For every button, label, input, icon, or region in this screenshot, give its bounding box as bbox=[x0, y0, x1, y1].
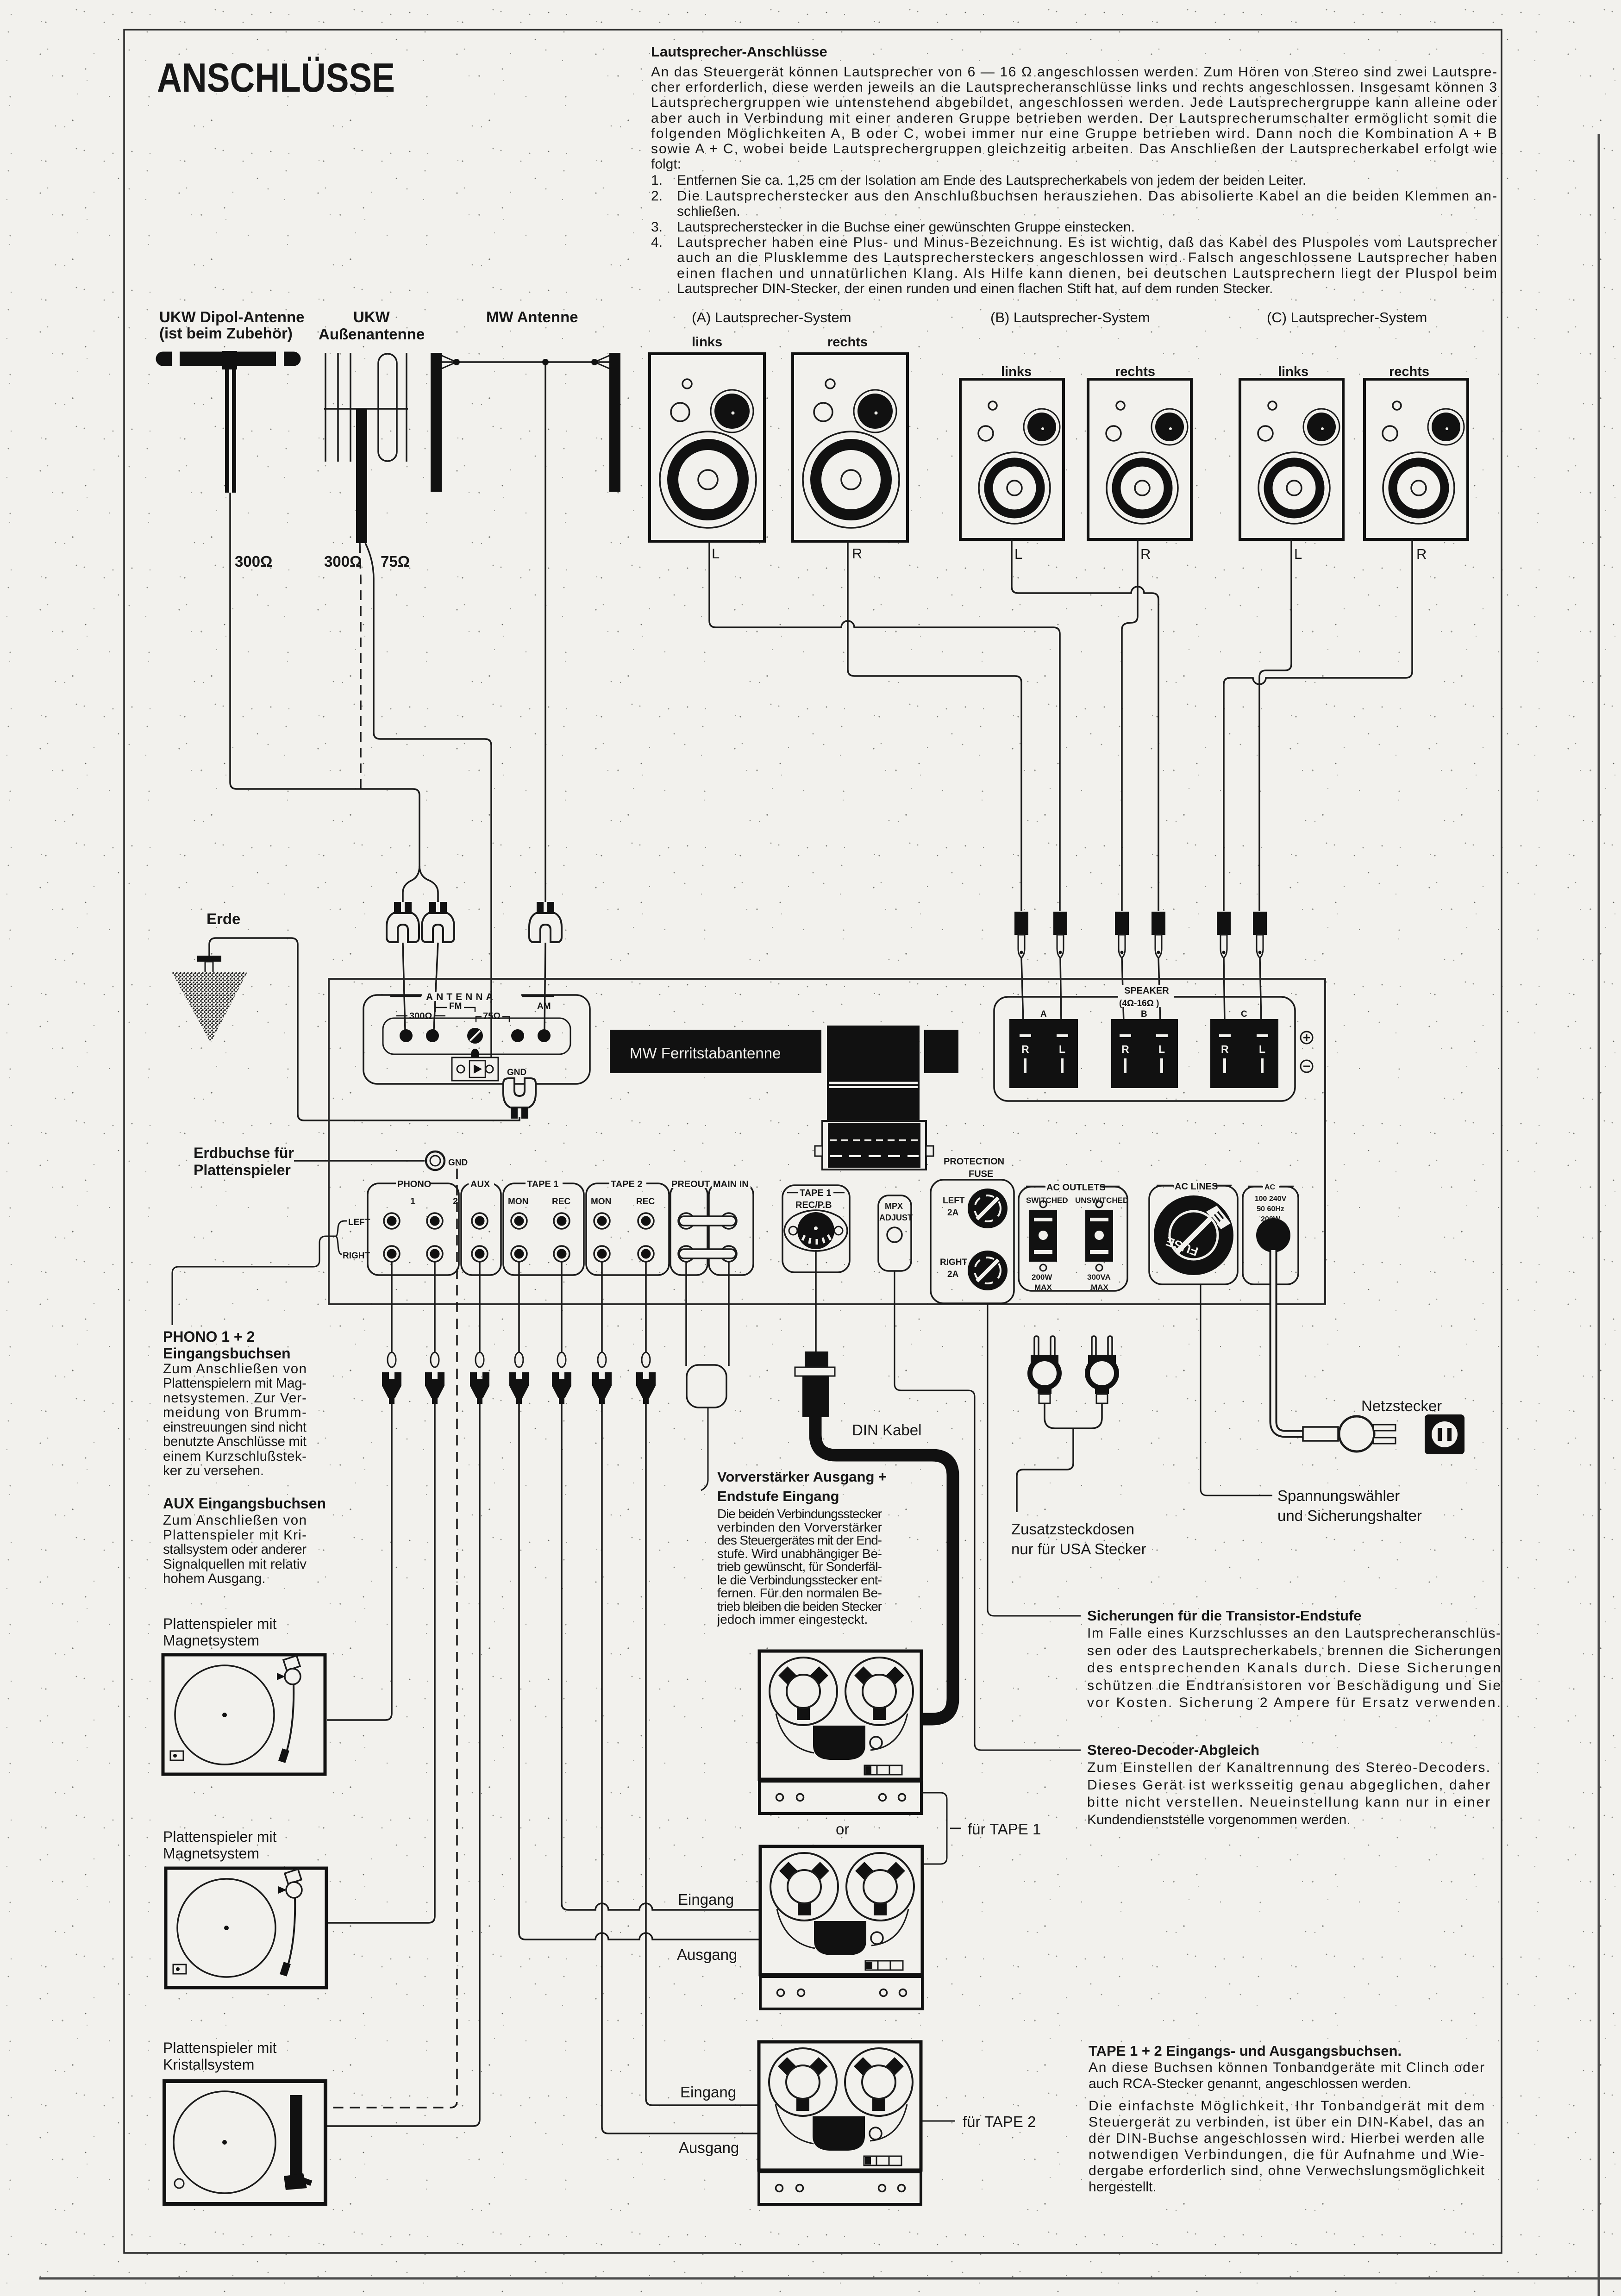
svg-text:AUX: AUX bbox=[470, 1179, 490, 1189]
svg-text:cher erforderlich, diese werde: cher erforderlich, diese werden jeweils … bbox=[651, 80, 1497, 95]
svg-text:75Ω: 75Ω bbox=[483, 1011, 501, 1021]
svg-text:An diese Buchsen können Tonban: An diese Buchsen können Tonbandgeräte mi… bbox=[1089, 2060, 1484, 2075]
svg-text:300Ω: 300Ω bbox=[235, 553, 273, 570]
svg-text:TAPE 1: TAPE 1 bbox=[527, 1179, 559, 1189]
svg-text:R: R bbox=[1416, 546, 1427, 562]
svg-text:MAX: MAX bbox=[1091, 1283, 1108, 1292]
svg-text:GND: GND bbox=[507, 1068, 526, 1077]
svg-text:schließen.: schließen. bbox=[677, 204, 740, 219]
svg-text:Außenantenne: Außenantenne bbox=[319, 325, 425, 343]
svg-text:Signalquellen mit relativ: Signalquellen mit relativ bbox=[163, 1557, 307, 1572]
svg-text:R: R bbox=[1021, 1043, 1029, 1055]
svg-text:stallsystem oder anderer: stallsystem oder anderer bbox=[163, 1542, 307, 1557]
svg-text:le die Verbindungsstecker ent-: le die Verbindungsstecker ent- bbox=[717, 1573, 882, 1587]
svg-text:Magnetsystem: Magnetsystem bbox=[163, 1632, 259, 1649]
svg-text:Kundendienststelle vorgenommen: Kundendienststelle vorgenommen werden. bbox=[1087, 1812, 1351, 1827]
svg-text:bitte nicht verstellen. Neuein: bitte nicht verstellen. Neueinstellung k… bbox=[1087, 1795, 1490, 1810]
svg-text:R: R bbox=[1140, 546, 1151, 562]
svg-text:Magnetsystem: Magnetsystem bbox=[163, 1845, 259, 1862]
svg-text:SWITCHED: SWITCHED bbox=[1026, 1196, 1068, 1205]
svg-text:2A: 2A bbox=[947, 1270, 959, 1279]
svg-text:L: L bbox=[1294, 546, 1302, 562]
svg-text:ADJUST: ADJUST bbox=[879, 1213, 913, 1222]
svg-text:1: 1 bbox=[410, 1196, 415, 1207]
svg-text:stufe. Wird unabhängiger Be-: stufe. Wird unabhängiger Be- bbox=[717, 1546, 882, 1561]
svg-text:REC: REC bbox=[552, 1197, 570, 1207]
svg-text:MON: MON bbox=[591, 1197, 611, 1207]
svg-text:A: A bbox=[1040, 1009, 1047, 1019]
svg-text:rechts: rechts bbox=[827, 335, 868, 350]
svg-text:Lautsprecher haben eine Plus-: Lautsprecher haben eine Plus- und Minus-… bbox=[677, 235, 1497, 250]
svg-text:1.: 1. bbox=[651, 173, 663, 188]
svg-text:AC LINES: AC LINES bbox=[1175, 1182, 1218, 1192]
svg-text:MPX: MPX bbox=[885, 1201, 903, 1211]
svg-text:Entfernen Sie ca. 1,25 cm der: Entfernen Sie ca. 1,25 cm der Isolation … bbox=[677, 173, 1306, 188]
svg-text:für TAPE 1: für TAPE 1 bbox=[968, 1821, 1041, 1838]
svg-text:Plattenspieler: Plattenspieler bbox=[194, 1162, 291, 1178]
svg-text:R: R bbox=[852, 545, 862, 562]
svg-text:Lautsprecherstecker in die Buc: Lautsprecherstecker in die Buchse einer … bbox=[677, 219, 1135, 235]
svg-text:2A: 2A bbox=[947, 1208, 959, 1218]
svg-text:PREOUT: PREOUT bbox=[671, 1179, 710, 1189]
svg-text:TAPE 2: TAPE 2 bbox=[611, 1179, 643, 1189]
svg-text:Plattenspieler mit: Plattenspieler mit bbox=[163, 2039, 277, 2056]
svg-text:einem Kurzschlußstek-: einem Kurzschlußstek- bbox=[163, 1449, 307, 1464]
svg-text:schützen die Endtransistoren v: schützen die Endtransistoren vor Beschäd… bbox=[1087, 1678, 1501, 1693]
svg-text:einen flachen und unnatürliche: einen flachen und unnatürlichen Klang. A… bbox=[677, 266, 1497, 281]
svg-text:GND: GND bbox=[448, 1158, 468, 1168]
svg-text:200W: 200W bbox=[1032, 1273, 1052, 1282]
svg-text:links: links bbox=[692, 335, 722, 350]
svg-text:MW Ferritstabantenne: MW Ferritstabantenne bbox=[630, 1045, 781, 1062]
svg-text:rechts: rechts bbox=[1115, 364, 1155, 379]
svg-text:einstreuungen sind nicht: einstreuungen sind nicht bbox=[163, 1420, 307, 1435]
svg-text:und Sicherungshalter: und Sicherungshalter bbox=[1277, 1507, 1422, 1524]
svg-text:UKW Dipol-Antenne: UKW Dipol-Antenne bbox=[159, 308, 304, 325]
svg-text:Dieses Gerät ist werksseitig g: Dieses Gerät ist werksseitig genau abgeg… bbox=[1087, 1777, 1490, 1793]
svg-text:verbinden den Vorverstärker: verbinden den Vorverstärker bbox=[717, 1520, 882, 1534]
svg-text:AM: AM bbox=[537, 1001, 551, 1011]
svg-text:trieb bleiben die beiden Steck: trieb bleiben die beiden Stecker bbox=[717, 1599, 882, 1614]
svg-text:Die Lautsprecherstecker aus de: Die Lautsprecherstecker aus den Anschluß… bbox=[677, 188, 1497, 204]
svg-text:Eingangsbuchsen: Eingangsbuchsen bbox=[163, 1345, 291, 1362]
svg-text:TAPE 1: TAPE 1 bbox=[800, 1188, 832, 1198]
svg-text:AC: AC bbox=[1264, 1183, 1276, 1191]
svg-text:auch RCA-Stecker genannt, ange: auch RCA-Stecker genannt, angeschlossen … bbox=[1089, 2076, 1411, 2091]
svg-text:MW Antenne: MW Antenne bbox=[486, 308, 578, 325]
svg-text:MAX: MAX bbox=[1034, 1283, 1052, 1292]
svg-text:Sicherungen für die Transistor: Sicherungen für die Transistor-Endstufe bbox=[1087, 1608, 1362, 1624]
svg-text:L: L bbox=[1259, 1043, 1265, 1055]
svg-text:3.: 3. bbox=[651, 219, 663, 235]
svg-text:R: R bbox=[1221, 1043, 1229, 1055]
svg-text:Plattenspieler mit Kri-: Plattenspieler mit Kri- bbox=[163, 1527, 307, 1543]
svg-text:B: B bbox=[1141, 1009, 1147, 1019]
svg-text:300Ω: 300Ω bbox=[324, 553, 362, 570]
svg-text:AUX Eingangsbuchsen: AUX Eingangsbuchsen bbox=[163, 1495, 326, 1512]
svg-text:2.: 2. bbox=[651, 188, 663, 204]
svg-text:REC/P.B: REC/P.B bbox=[795, 1200, 832, 1210]
svg-text:links: links bbox=[1001, 364, 1032, 379]
svg-text:UKW: UKW bbox=[353, 308, 390, 325]
svg-text:Spannungswähler: Spannungswähler bbox=[1277, 1487, 1400, 1504]
svg-text:FM: FM bbox=[449, 1001, 462, 1011]
svg-text:hergestellt.: hergestellt. bbox=[1089, 2179, 1157, 2195]
svg-text:folgt:: folgt: bbox=[651, 156, 681, 172]
svg-text:folgenden Möglichkeiten A, B o: folgenden Möglichkeiten A, B oder C, wob… bbox=[651, 126, 1497, 141]
svg-text:LEFT: LEFT bbox=[348, 1218, 370, 1227]
svg-text:DIN Kabel: DIN Kabel bbox=[852, 1421, 921, 1439]
svg-text:Netzstecker: Netzstecker bbox=[1361, 1397, 1442, 1414]
svg-text:Lautsprecher-Anschlüsse: Lautsprecher-Anschlüsse bbox=[651, 44, 827, 60]
svg-text:RIGHT: RIGHT bbox=[940, 1257, 968, 1267]
svg-text:Steuergerät zu verbinden, ist: Steuergerät zu verbinden, ist über ein D… bbox=[1089, 2115, 1484, 2130]
svg-text:(ist beim Zubehör): (ist beim Zubehör) bbox=[159, 325, 293, 342]
svg-text:trieb gewünscht, für Sonderfäl: trieb gewünscht, für Sonderfäl- bbox=[717, 1559, 882, 1574]
svg-text:300VA: 300VA bbox=[1087, 1273, 1111, 1282]
svg-text:Eingang: Eingang bbox=[678, 1891, 734, 1908]
svg-text:PHONO 1 + 2: PHONO 1 + 2 bbox=[163, 1328, 255, 1345]
svg-text:Erdbuchse für: Erdbuchse für bbox=[194, 1145, 294, 1161]
svg-text:Ausgang: Ausgang bbox=[679, 2139, 739, 2156]
svg-text:Erde: Erde bbox=[207, 910, 240, 927]
svg-text:MON: MON bbox=[508, 1197, 528, 1207]
svg-text:MAIN IN: MAIN IN bbox=[713, 1179, 749, 1189]
svg-text:benutzte Anschlüsse mit: benutzte Anschlüsse mit bbox=[163, 1434, 307, 1449]
svg-text:Plattenspielern mit Mag-: Plattenspielern mit Mag- bbox=[163, 1376, 307, 1391]
svg-text:Plattenspieler mit: Plattenspieler mit bbox=[163, 1828, 277, 1845]
svg-text:(C) Lautsprecher-System: (C) Lautsprecher-System bbox=[1267, 309, 1427, 325]
svg-text:(B) Lautsprecher-System: (B) Lautsprecher-System bbox=[990, 309, 1150, 325]
svg-text:ker zu versehen.: ker zu versehen. bbox=[163, 1463, 264, 1478]
svg-text:sowie A + C, wobei beide Lauts: sowie A + C, wobei beide Lautsprechergru… bbox=[651, 141, 1497, 156]
svg-text:Plattenspieler mit: Plattenspieler mit bbox=[163, 1615, 277, 1632]
svg-text:L: L bbox=[1059, 1043, 1065, 1055]
svg-text:des Steuergerätes mit der End-: des Steuergerätes mit der End- bbox=[717, 1533, 882, 1547]
svg-text:or: or bbox=[836, 1821, 849, 1838]
svg-text:C: C bbox=[1241, 1009, 1247, 1019]
svg-text:Zum Anschließen von: Zum Anschließen von bbox=[163, 1513, 307, 1528]
svg-text:L: L bbox=[1158, 1043, 1165, 1055]
svg-text:Zum Anschließen von: Zum Anschließen von bbox=[163, 1361, 307, 1376]
svg-text:netsystemen. Zur Ver-: netsystemen. Zur Ver- bbox=[163, 1390, 307, 1406]
svg-text:Im Falle eines Kurzschlusses a: Im Falle eines Kurzschlusses an den Laut… bbox=[1087, 1626, 1501, 1641]
svg-text:PHONO: PHONO bbox=[397, 1179, 431, 1189]
svg-text:Zusatzsteckdosen: Zusatzsteckdosen bbox=[1011, 1520, 1134, 1538]
svg-text:ANTENNA: ANTENNA bbox=[426, 992, 496, 1002]
svg-text:links: links bbox=[1278, 364, 1308, 379]
svg-text:Die einfachste Möglichkeit, Ih: Die einfachste Möglichkeit, Ihr Tonbandg… bbox=[1089, 2098, 1484, 2114]
svg-text:R: R bbox=[1121, 1043, 1129, 1055]
svg-text:REC: REC bbox=[636, 1197, 655, 1207]
svg-text:meidung von Brumm-: meidung von Brumm- bbox=[163, 1405, 307, 1420]
svg-text:LEFT: LEFT bbox=[943, 1196, 965, 1206]
svg-text:SPEAKER: SPEAKER bbox=[1124, 986, 1169, 996]
svg-text:4.: 4. bbox=[651, 235, 663, 250]
svg-text:AC OUTLETS: AC OUTLETS bbox=[1046, 1182, 1106, 1193]
svg-text:nur für USA Stecker: nur für USA Stecker bbox=[1011, 1540, 1146, 1558]
svg-text:jedoch immer eingesteckt.: jedoch immer eingesteckt. bbox=[717, 1612, 868, 1627]
svg-text:Endstufe Eingang: Endstufe Eingang bbox=[717, 1488, 839, 1504]
svg-text:An das Steuergerät können Laut: An das Steuergerät können Lautsprecher v… bbox=[651, 64, 1497, 80]
svg-text:100 240V: 100 240V bbox=[1255, 1195, 1287, 1203]
svg-text:Ausgang: Ausgang bbox=[677, 1946, 737, 1963]
svg-text:Eingang: Eingang bbox=[680, 2083, 736, 2101]
svg-text:75Ω: 75Ω bbox=[381, 553, 410, 570]
svg-text:fernen. Für den normalen Be-: fernen. Für den normalen Be- bbox=[717, 1586, 882, 1600]
svg-text:Zum Einstellen der Kanaltrennu: Zum Einstellen der Kanaltrennung des Ste… bbox=[1087, 1760, 1490, 1775]
svg-text:aber auch in Verbindung mit ei: aber auch in Verbindung mit einer andere… bbox=[651, 111, 1497, 126]
svg-text:Kristallsystem: Kristallsystem bbox=[163, 2056, 254, 2073]
svg-text:hohem Ausgang.: hohem Ausgang. bbox=[163, 1571, 265, 1586]
svg-text:Die beiden Verbindungsstecker: Die beiden Verbindungsstecker bbox=[717, 1507, 882, 1521]
svg-text:PROTECTION: PROTECTION bbox=[944, 1157, 1004, 1167]
svg-text:(4Ω-16Ω ): (4Ω-16Ω ) bbox=[1119, 999, 1159, 1008]
svg-text:rechts: rechts bbox=[1389, 364, 1429, 379]
svg-text:TAPE 1 + 2 Eingangs- und Ausga: TAPE 1 + 2 Eingangs- und Ausgangsbuchsen… bbox=[1089, 2043, 1402, 2059]
svg-text:der DIN-Buchse angeschlossen w: der DIN-Buchse angeschlossen wird. Hierb… bbox=[1089, 2131, 1484, 2146]
svg-text:Vorverstärker Ausgang +: Vorverstärker Ausgang + bbox=[717, 1469, 887, 1485]
svg-text:50 60Hz: 50 60Hz bbox=[1257, 1205, 1284, 1213]
svg-text:Lautsprecher DIN-Stecker, der: Lautsprecher DIN-Stecker, der einen rund… bbox=[677, 281, 1273, 296]
svg-text:L: L bbox=[712, 545, 720, 562]
svg-text:für TAPE 2: für TAPE 2 bbox=[963, 2113, 1036, 2130]
svg-text:L: L bbox=[1014, 546, 1022, 562]
svg-text:dergabe erforderlich sind, ohn: dergabe erforderlich sind, ohne Verwechs… bbox=[1089, 2163, 1485, 2178]
svg-text:300Ω: 300Ω bbox=[409, 1011, 432, 1021]
svg-text:sen oder des Lautsprecherkabel: sen oder des Lautsprecherkabels, brennen… bbox=[1087, 1643, 1501, 1658]
svg-text:2: 2 bbox=[453, 1196, 458, 1207]
svg-text:(A) Lautsprecher-System: (A) Lautsprecher-System bbox=[692, 309, 851, 325]
svg-text:ANSCHLÜSSE: ANSCHLÜSSE bbox=[157, 55, 395, 100]
svg-text:FUSE: FUSE bbox=[969, 1169, 993, 1179]
svg-text:RIGHT: RIGHT bbox=[343, 1251, 370, 1261]
svg-text:Stereo-Decoder-Abgleich: Stereo-Decoder-Abgleich bbox=[1087, 1742, 1259, 1758]
